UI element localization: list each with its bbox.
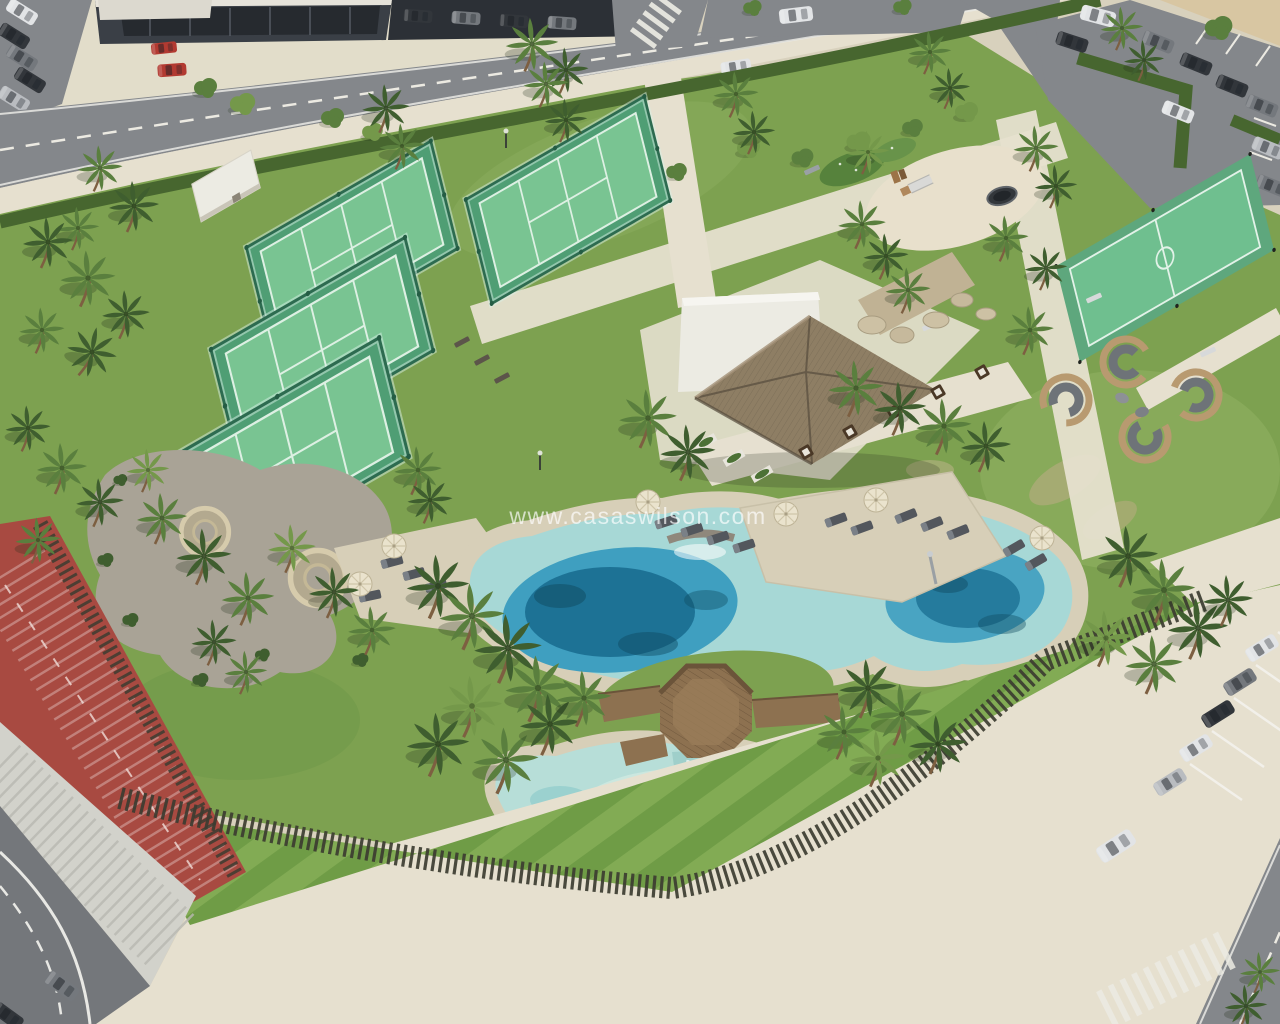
- car: [547, 16, 577, 31]
- car: [403, 9, 433, 24]
- parasol: [382, 534, 406, 558]
- parasol: [1030, 526, 1054, 550]
- red-pickup: [157, 63, 187, 78]
- building-roof-block: [98, 0, 212, 20]
- car: [451, 11, 481, 26]
- watermark-text: www.casaswilson.com: [508, 503, 766, 529]
- parasol: [774, 502, 798, 526]
- parasol: [864, 488, 888, 512]
- aerial-resort-render: www.casaswilson.com: [0, 0, 1280, 1024]
- car: [499, 14, 529, 29]
- waterfall-foam: [674, 544, 726, 560]
